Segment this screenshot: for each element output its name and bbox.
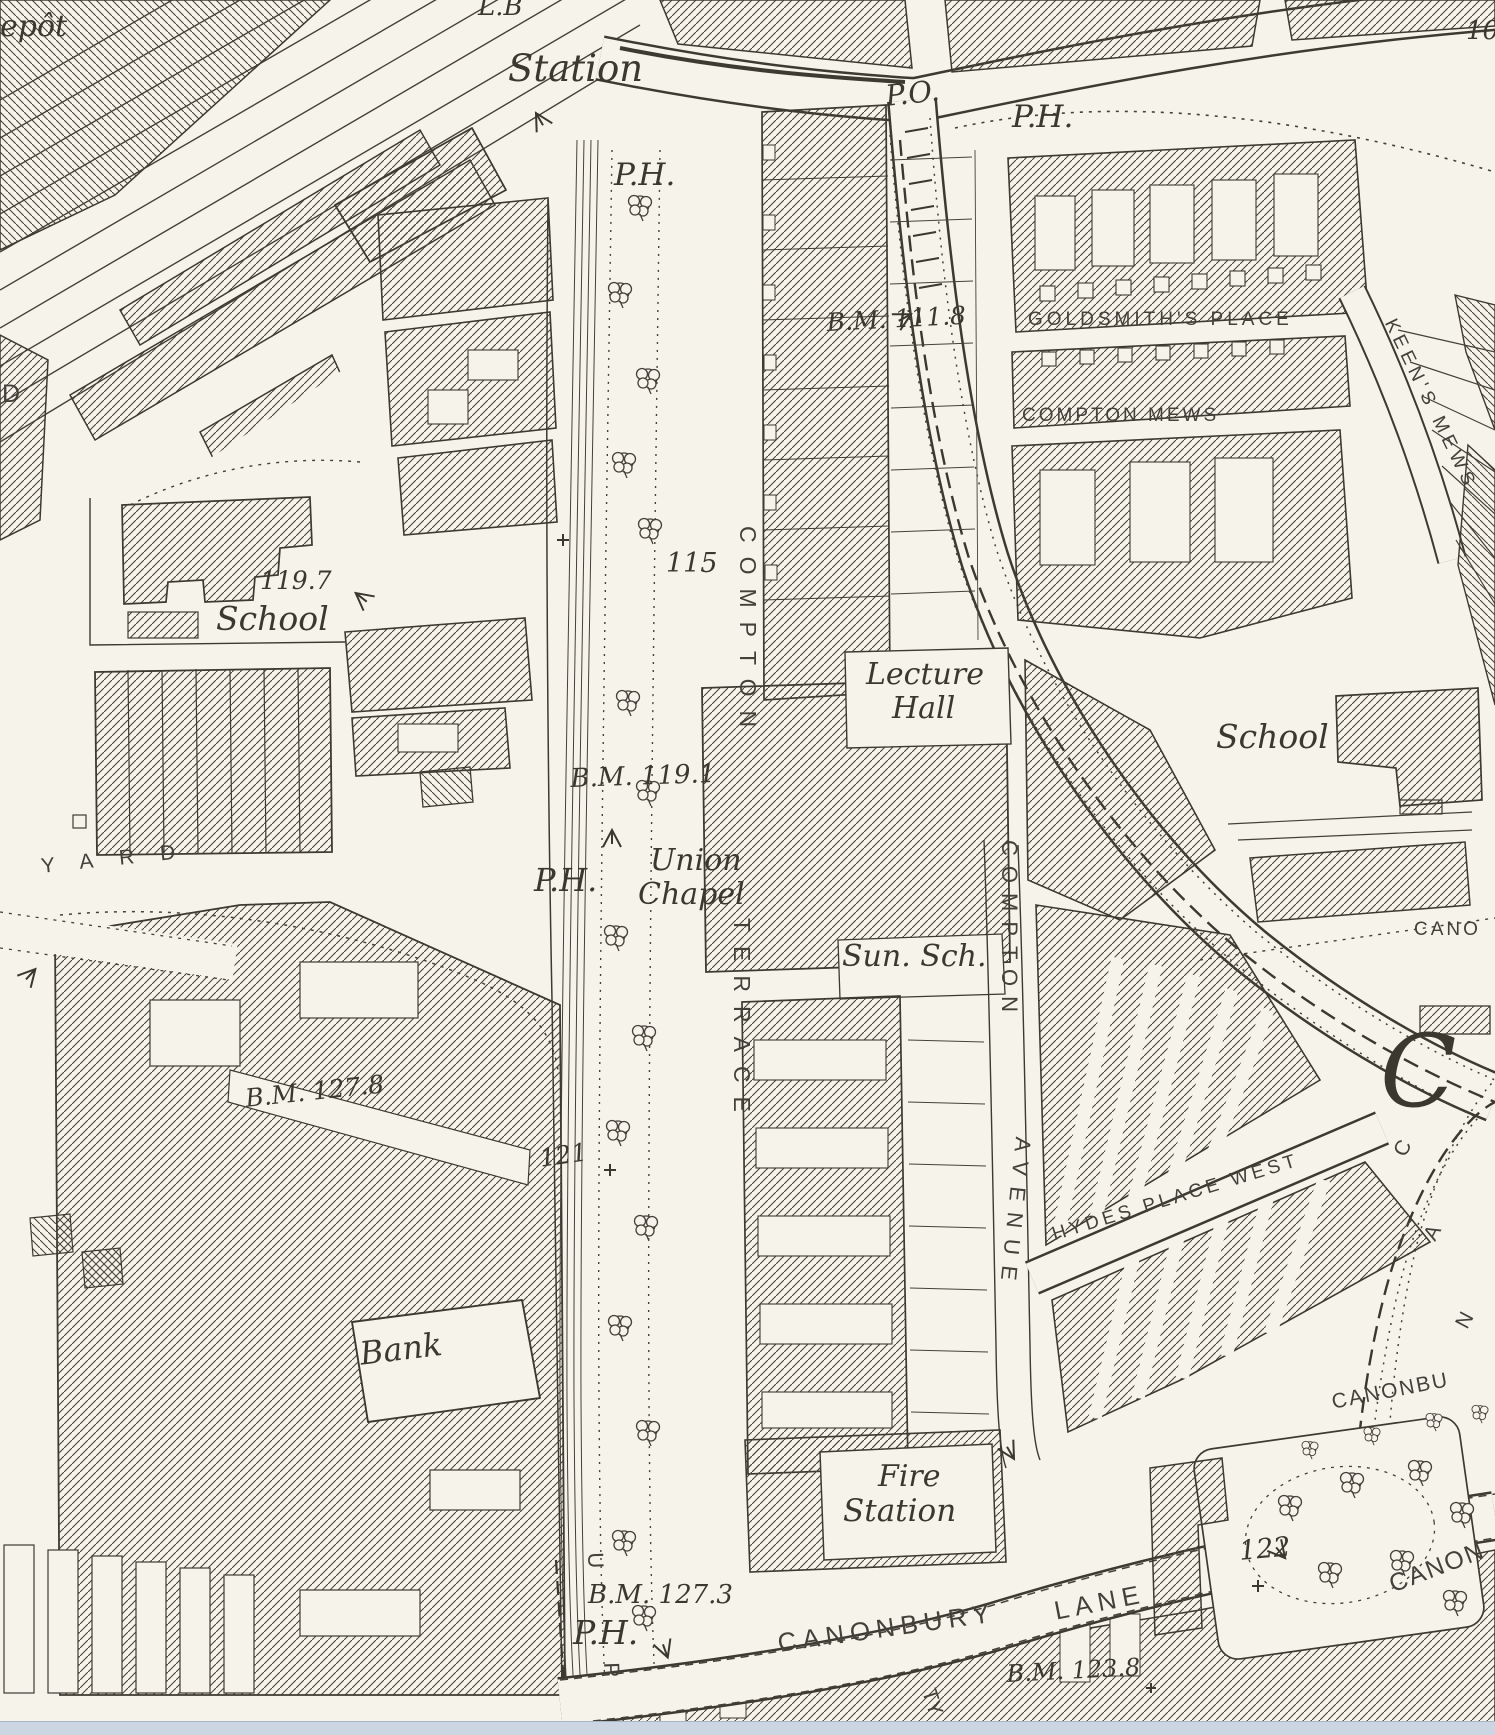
label-compton-terrace-compton: COMPTON <box>736 526 759 741</box>
label-sunday-school: Sun. Sch. <box>842 942 986 972</box>
label-road-d-partial: D <box>2 382 20 407</box>
label-ph-station: P.H. <box>614 160 675 191</box>
label-school-east: School <box>1216 720 1329 753</box>
label-spot-122: 122 <box>1238 1534 1292 1565</box>
label-upper-street-p: P <box>600 1662 622 1677</box>
south-terrace <box>742 996 1006 1572</box>
label-fire-station-station: Station <box>843 1496 956 1527</box>
label-union: Union <box>650 846 742 876</box>
label-bm-111-8: B.M. 111.8 <box>826 303 967 335</box>
label-fire: Fire <box>878 1462 941 1492</box>
bank-block <box>4 902 565 1695</box>
label-school-west: School <box>216 602 329 635</box>
label-upper-street-u: U <box>584 1552 607 1569</box>
label-compton-terrace-terrace: TERRACE <box>730 918 753 1126</box>
label-bm-119-1: B.M. 119.1 <box>570 761 716 792</box>
label-station: Station <box>508 50 643 87</box>
label-ph-union-chapel: P.H. <box>534 864 597 896</box>
label-ph-canonbury: P.H. <box>573 1616 638 1649</box>
goldsmiths-place-block <box>1008 140 1368 920</box>
canonbury-garden <box>1150 1414 1486 1661</box>
mid-left-cluster <box>345 618 532 807</box>
horizontal-scrollbar[interactable] <box>0 1721 1495 1735</box>
keens-mews <box>1352 292 1495 705</box>
label-canonbury-initial: C <box>1380 1022 1457 1122</box>
label-goldsmiths-place: GOLDSMITH'S PLACE <box>1028 310 1293 329</box>
label-plot-10: 10 <box>1466 18 1495 44</box>
label-depot-partial: epôt <box>0 12 67 42</box>
label-chapel: Chapel <box>638 880 745 910</box>
striped-block <box>73 668 332 855</box>
map-canvas <box>0 0 1495 1735</box>
label-spot-119-7: 119.7 <box>260 568 332 593</box>
label-bank: Bank <box>358 1328 444 1370</box>
label-bm-123-8: B.M. 123.8 <box>1006 1655 1141 1686</box>
label-hall: Hall <box>892 694 955 724</box>
label-lb: L.B <box>478 0 523 20</box>
label-post-office: P.O. <box>884 76 941 111</box>
map-viewport[interactable]: epôt L.B Station P.H. P.O. P.H. B.M. 111… <box>0 0 1495 1735</box>
label-plot-115: 115 <box>666 550 718 577</box>
label-compton-mews: COMPTON MEWS <box>1022 406 1219 425</box>
label-cano-partial: CANO <box>1414 920 1481 939</box>
label-bm-127-3: B.M. 127.3 <box>588 1582 733 1608</box>
label-compton-avenue-compton: COMPTON <box>998 840 1020 1022</box>
label-spot-121: 121 <box>538 1139 589 1170</box>
label-lecture: Lecture <box>866 660 984 690</box>
label-ph-top-right: P.H. <box>1012 102 1073 133</box>
